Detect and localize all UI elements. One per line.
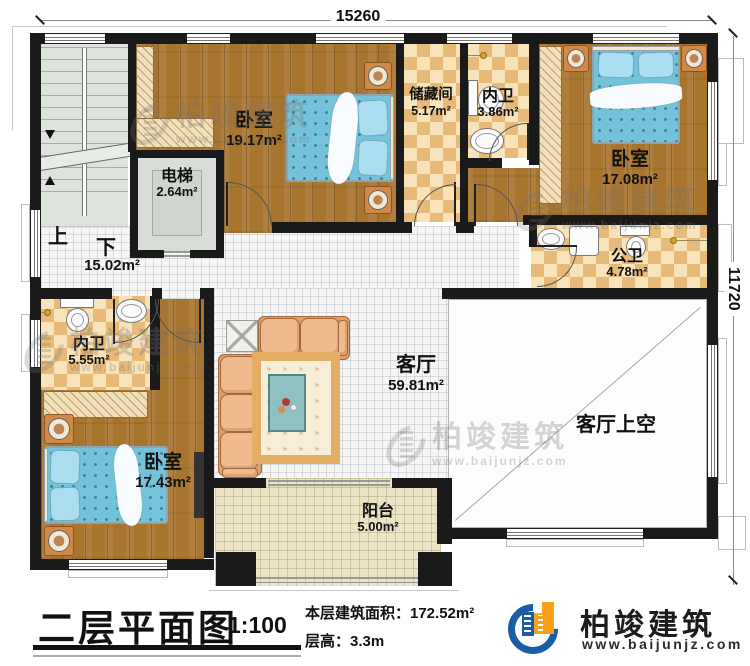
floor-height-text: 层高：3.3m [305,630,384,651]
balcony-railing [256,582,418,583]
dimension-right-value: 11720 [724,262,742,316]
nightstand [563,45,589,72]
nightstand [681,45,707,72]
wall-ensuite-bedroom [529,44,539,165]
wall-hall-top [272,222,412,233]
title-underline-thin [33,655,301,657]
eave-line-left [12,26,13,130]
window [187,33,230,44]
plan-title: 二层平面图 [38,598,238,652]
wall-exterior-left [30,33,41,570]
wardrobe [136,46,154,128]
window [707,345,718,477]
window-sill [718,58,744,144]
wall-bedroom-bath-top [523,215,707,225]
window [30,320,41,367]
lamp-cord [466,55,480,56]
balcony-railing [256,577,418,579]
pillow [357,99,389,137]
eave-line-top [12,26,667,27]
balcony-post [418,552,452,586]
balcony-post [216,552,256,586]
window [316,33,404,44]
sofa-cushion [260,318,300,356]
flower-decor [278,406,285,413]
pillow [357,139,389,177]
wall-bedroom-living [204,288,214,558]
window-sill [68,570,168,578]
wall-elevator [130,150,224,158]
plan-scale: 1:100 [228,612,287,639]
wardrobe [539,46,562,204]
pillow [638,51,675,78]
nightstand [364,186,392,214]
room-label-public-bath: 公卫4.78m² [606,248,647,280]
wall-balcony-right [437,478,452,544]
room-label-living: 客厅59.81m² [388,355,444,394]
room-label-ensuite-left: 内卫5.55m² [68,336,109,368]
flower-decor [282,398,290,406]
balcony-sliding-door [268,484,390,486]
wall-publicbath-left [529,222,537,247]
window [45,33,105,44]
stair-up-label: 上 [48,220,68,249]
stair-stringer [82,48,87,216]
nightstand [364,62,392,90]
wall-elevator [130,150,138,258]
nightstand [44,526,74,556]
stair-down-label: 下 [96,231,116,260]
door-leaf [199,299,201,343]
title-block: 二层平面图 1:100 本层建筑面积：172.52m² 层高：3.3m 柏竣建筑… [0,594,750,666]
pillow [598,51,635,78]
wall-publicbath-bottom [442,288,718,299]
nightstand [44,414,74,444]
room-label-ensuite-top: 内卫3.86m² [477,88,518,120]
balcony-outline [209,590,459,591]
toilet-bowl [66,308,89,332]
tv [194,452,204,518]
logo-building-blue [522,612,534,636]
window-sill [21,204,30,282]
wall-elevator [216,150,224,258]
lamp-cord [677,240,707,241]
elevator-door [164,255,190,257]
brand-logo-icon [506,598,572,660]
headboard [592,46,680,51]
room-label-living-void: 客厅上空 [576,408,656,437]
elevator-door [164,251,190,253]
room-label-bedroom-bottom: 卧室17.43m² [135,453,191,491]
side-table [226,320,258,352]
wardrobe [136,118,214,148]
headboard [390,96,394,180]
dimension-top-value: 15260 [331,8,386,26]
sofa-armrest [338,320,348,356]
window [707,82,718,180]
brand-website: www.baijunjz.com [582,636,743,652]
wall-balcony-top [204,478,266,488]
wall-stair-right [128,44,136,152]
ceiling-lamp [480,52,487,59]
window-sill [718,516,746,550]
flower-decor [290,404,297,411]
window-sill [21,314,30,372]
door-leaf [527,123,529,160]
window-sill [718,338,727,484]
wall-storage-ensuite [460,44,468,233]
window [507,528,643,539]
pillow [49,449,80,484]
floorplan-page: 卧室19.17m² 电梯2.64m² 储藏间5.17m² 内卫3.86m² 卧室… [0,0,750,666]
pillow [49,486,80,521]
window-sill [506,539,644,547]
balcony-sliding-door [268,480,390,482]
room-label-bedroom-right: 卧室17.08m² [602,150,658,188]
wall-hall-bottom [41,288,112,299]
stair-direction-arrow [45,130,55,139]
room-label-storage: 储藏间5.17m² [409,88,453,118]
headboard [44,448,48,522]
floor-area-text: 本层建筑面积：172.52m² [305,602,474,623]
title-underline [33,645,301,650]
window [30,210,41,277]
sofa-armrest [222,468,258,478]
wall-bedroom-storage [396,44,404,233]
sofa-cushion [300,318,340,356]
stair-direction-arrow [45,176,55,185]
toilet-tank [620,226,650,236]
room-label-balcony: 阳台5.00m² [357,503,398,535]
lamp-cord [41,312,46,313]
wall-elevator [190,250,224,258]
toilet-tank [60,298,94,308]
window [69,559,167,570]
room-label-elevator: 电梯2.64m² [156,168,197,200]
ceiling-lamp [670,237,677,244]
window [447,33,512,44]
window [593,33,679,44]
hall-area-label: 15.02m² [84,257,140,274]
floorplan-drawing: 卧室19.17m² 电梯2.64m² 储藏间5.17m² 内卫3.86m² 卧室… [0,0,750,666]
room-label-bedroom-top: 卧室19.17m² [226,111,282,149]
